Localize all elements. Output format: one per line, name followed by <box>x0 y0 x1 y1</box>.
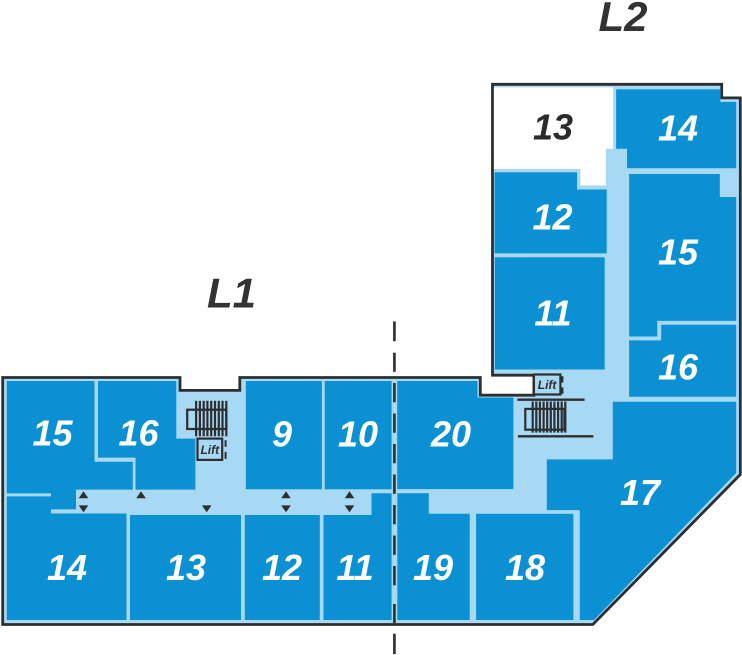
svg-text:9: 9 <box>272 414 292 455</box>
svg-text:18: 18 <box>505 547 545 588</box>
svg-text:14: 14 <box>658 107 698 148</box>
svg-text:11: 11 <box>336 547 373 588</box>
svg-text:L1: L1 <box>207 270 256 317</box>
svg-text:Lift: Lift <box>200 443 220 457</box>
svg-text:Lift: Lift <box>538 378 558 392</box>
svg-text:12: 12 <box>532 197 572 238</box>
svg-text:12: 12 <box>262 547 302 588</box>
svg-text:20: 20 <box>430 414 471 455</box>
svg-text:L2: L2 <box>598 0 647 40</box>
svg-text:13: 13 <box>533 106 573 147</box>
svg-text:10: 10 <box>338 414 378 455</box>
svg-text:16: 16 <box>658 346 699 387</box>
svg-text:11: 11 <box>534 292 571 333</box>
svg-text:19: 19 <box>413 547 453 588</box>
svg-text:16: 16 <box>118 413 159 454</box>
svg-text:17: 17 <box>620 472 662 513</box>
svg-text:15: 15 <box>32 413 73 454</box>
svg-text:13: 13 <box>166 547 206 588</box>
svg-text:14: 14 <box>47 547 87 588</box>
svg-text:15: 15 <box>658 231 699 272</box>
